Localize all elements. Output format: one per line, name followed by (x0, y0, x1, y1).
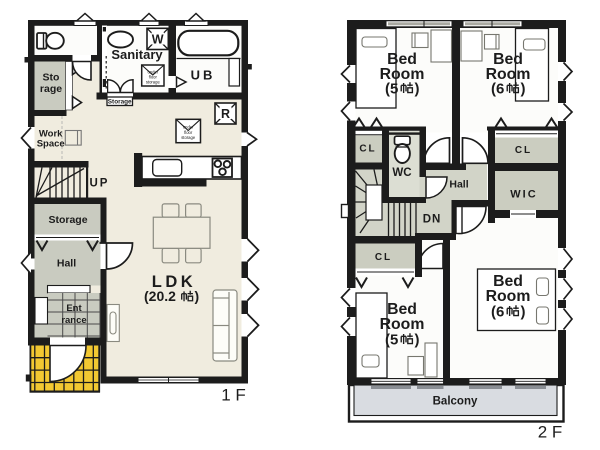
svg-text:UB: UB (191, 68, 216, 83)
svg-text:CL: CL (359, 144, 376, 155)
svg-text:Sanitary: Sanitary (111, 47, 163, 62)
svg-text:(5: (5 (385, 332, 398, 349)
svg-text:Balcony: Balcony (433, 396, 478, 408)
svg-text:Storage: Storage (108, 99, 132, 106)
svg-text:WIC: WIC (510, 189, 537, 201)
svg-text:): ) (195, 288, 200, 304)
svg-text:2 F: 2 F (538, 423, 563, 442)
svg-text:1 F: 1 F (221, 386, 246, 405)
svg-text:): ) (521, 81, 526, 98)
svg-text:): ) (415, 81, 420, 98)
svg-text:storage: storage (146, 80, 161, 85)
svg-text:storage: storage (181, 135, 196, 140)
svg-text:Hall: Hall (449, 179, 468, 191)
svg-text:Space: Space (37, 139, 65, 150)
svg-text:UP: UP (90, 178, 110, 190)
svg-text:): ) (415, 332, 420, 349)
svg-text:CL: CL (375, 252, 392, 263)
svg-text:Hall: Hall (57, 258, 76, 270)
svg-text:Ent: Ent (66, 303, 82, 314)
svg-text:Room: Room (486, 288, 531, 305)
svg-text:(6: (6 (491, 81, 504, 98)
svg-text:R: R (221, 107, 230, 121)
svg-text:Sto: Sto (43, 72, 60, 84)
svg-text:DN: DN (423, 214, 442, 226)
svg-text:rance: rance (61, 315, 86, 326)
svg-text:(6: (6 (491, 304, 504, 321)
svg-text:rage: rage (40, 83, 62, 95)
svg-text:(20.2: (20.2 (144, 288, 176, 304)
svg-text:(5: (5 (385, 81, 398, 98)
svg-text:CL: CL (515, 145, 532, 156)
svg-text:WC: WC (392, 167, 411, 179)
svg-text:W: W (152, 33, 164, 47)
svg-text:Room: Room (380, 316, 425, 333)
svg-text:Storage: Storage (48, 214, 87, 226)
svg-text:): ) (521, 304, 526, 321)
